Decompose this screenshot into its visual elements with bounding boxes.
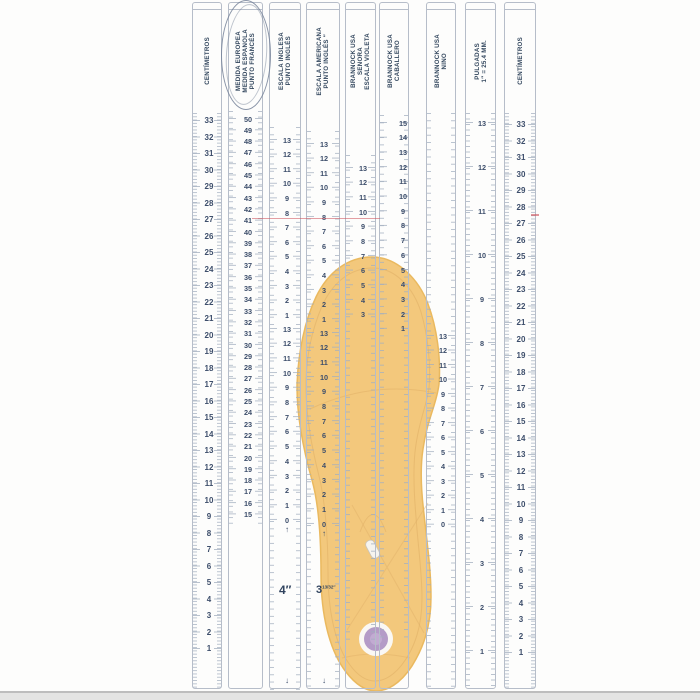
scale-number: 10 [278,369,296,378]
scale-number: 15 [200,413,218,422]
scale-strip-centimetros-right: CENTÍMETROS33323130292827262524232221201… [504,2,536,689]
scale-number: 32 [512,137,530,146]
scale-number: 19 [239,465,257,474]
scale-number: 4 [278,267,296,276]
strip-header-centimetros-left: CENTÍMETROS [193,14,221,108]
scale-number: 2 [278,486,296,495]
scale-number: 23 [512,285,530,294]
strip-top-divider [193,9,221,10]
scale-number: 25 [239,397,257,406]
scale-number: 14 [200,430,218,439]
scale-number: 19 [200,347,218,356]
scale-number: 34 [239,295,257,304]
scale-number: 5 [315,256,333,265]
scale-number: 5 [512,582,530,591]
scale-number: 11 [278,165,296,174]
strip-top-divider [346,9,375,10]
scale-number: 30 [512,170,530,179]
scale-number: 27 [512,219,530,228]
scale-number: 0 [315,520,333,529]
scale-number: 4 [315,271,333,280]
tick-marks [307,143,314,321]
scale-number: 31 [200,149,218,158]
scale-number: 7 [278,223,296,232]
scale-number: 6 [394,251,412,260]
scale-number: 9 [278,383,296,392]
scale-number: 13 [512,450,530,459]
scale-number: 20 [200,331,218,340]
scale-number: 12 [315,343,333,352]
strip-header-brannock-senora: BRANNOCK USASEÑORAESCALA VIOLETA [346,14,375,108]
scale-number: 4 [278,457,296,466]
scale-number: 5 [200,578,218,587]
scale-number: 4 [394,280,412,289]
scale-number: 11 [354,193,372,202]
scale-number: 33 [200,116,218,125]
strip-top-divider [505,9,535,10]
scale-number: 6 [354,266,372,275]
scale-number: 4 [354,296,372,305]
scale-number: 21 [200,314,218,323]
scale-number: 1 [315,505,333,514]
scale-number: 32 [200,133,218,142]
baseline-arrow-icon: ↓ [315,677,333,685]
tick-marks [380,122,387,331]
scale-number: 26 [512,236,530,245]
scale-number: 15 [239,510,257,519]
scale-number: 7 [473,383,491,392]
scale-number: 16 [512,401,530,410]
scale-number: 3 [394,295,412,304]
scale-number: 12 [394,163,412,172]
tick-marks [505,124,512,655]
tick-marks [270,328,277,522]
scale-number: 13 [315,140,333,149]
strip-header-line: SEÑORA [357,47,364,75]
scale-number: 32 [239,318,257,327]
strip-header-brannock-caballero: BRANNOCK USACABALLERO [380,14,408,108]
scale-number: 12 [512,467,530,476]
scale-number: 4 [315,461,333,470]
scale-number: 5 [394,266,412,275]
scale-number: 8 [473,339,491,348]
tick-marks [466,122,473,653]
scale-number: 1 [434,506,452,515]
scale-number: 11 [512,483,530,492]
scale-number: 6 [278,238,296,247]
scale-number: 26 [200,232,218,241]
strip-header-centimetros-right: CENTÍMETROS [505,14,535,108]
scale-number: 8 [354,237,372,246]
scale-number: 13 [354,164,372,173]
strip-header-line: PUNTO INGLÉS [285,36,292,85]
scale-number: 27 [239,374,257,383]
scale-number: 31 [512,153,530,162]
scale-number: 10 [354,208,372,217]
strip-header-line: ESCALA AMERICANA [316,27,323,96]
scale-number: 7 [315,417,333,426]
baseline-arrow-icon: ↓ [278,677,296,685]
scale-number: 6 [200,562,218,571]
scale-number: 8 [315,402,333,411]
scale-number: 1 [512,648,530,657]
scale-number: 18 [239,476,257,485]
scale-number: 11 [315,169,333,178]
scale-number: 8 [434,404,452,413]
scale-number: 3 [315,476,333,485]
red-scan-mark [531,214,539,216]
strip-header-line: BRANNOCK USA [387,34,394,88]
scale-number: 2 [278,296,296,305]
scale-number: 5 [434,448,452,457]
scale-number: 29 [512,186,530,195]
scale-number: 21 [239,442,257,451]
scale-number: 8 [394,221,412,230]
tick-marks [332,332,339,526]
scale-number: 6 [315,242,333,251]
zero-pointer-icon: ↑ [278,526,296,534]
scale-number: 11 [434,361,452,370]
scale-number: 9 [394,207,412,216]
scale-number: 12 [278,150,296,159]
scale-number: 5 [278,252,296,261]
scale-number: 28 [200,199,218,208]
scale-number: 44 [239,182,257,191]
strip-header-line: BRANNOCK USA [434,34,441,88]
scale-number: 47 [239,148,257,157]
scale-number: 9 [512,516,530,525]
scale-strip-pulgadas: PULGADAS1″ = 25.4 MM.13121110987654321 [465,2,496,689]
scale-number: 14 [512,434,530,443]
tick-marks [346,167,353,317]
scale-number: 36 [239,273,257,282]
scale-number: 21 [512,318,530,327]
foot-measuring-chart: CENTÍMETROS33323130292827262524232221201… [0,0,700,700]
scale-number: 3 [354,310,372,319]
scale-number: 25 [512,252,530,261]
scale-number: 22 [200,298,218,307]
scale-number: 1 [394,324,412,333]
scale-number: 3 [315,286,333,295]
scale-number: 10 [200,496,218,505]
scale-number: 11 [315,358,333,367]
tick-marks [229,118,236,517]
scale-number: 26 [239,386,257,395]
scale-number: 22 [239,431,257,440]
scale-number: 12 [434,346,452,355]
scale-number: 10 [278,179,296,188]
scale-number: 12 [315,154,333,163]
scale-number: 8 [315,213,333,222]
strip-header-line: NIÑO [441,53,448,69]
scale-number: 40 [239,228,257,237]
scale-number: 31 [239,329,257,338]
tick-marks [332,143,339,321]
scale-number: 10 [394,192,412,201]
scale-number: 7 [354,252,372,261]
scale-number: 5 [278,442,296,451]
scale-number: 2 [200,628,218,637]
tick-marks [193,120,200,651]
scale-number: 8 [278,398,296,407]
scale-number: 0 [434,520,452,529]
scale-number: 11 [200,479,218,488]
scale-number: 5 [473,471,491,480]
scale-number: 45 [239,171,257,180]
strip-header-line: CENTÍMETROS [517,37,524,85]
scale-number: 4 [434,462,452,471]
scale-number: 10 [512,500,530,509]
scale-number: 11 [278,354,296,363]
scale-number: 28 [512,203,530,212]
strip-header-line: ESCALA INGLESA [278,32,285,90]
scale-number: 24 [200,265,218,274]
scale-number: 6 [278,427,296,436]
scale-number: 2 [512,632,530,641]
frac-part: 13/32″ [322,584,335,589]
scale-number: 10 [315,183,333,192]
scale-number: 7 [315,227,333,236]
scale-number: 13 [394,148,412,157]
scale-number: 17 [200,380,218,389]
scale-number: 13 [315,329,333,338]
tick-marks [307,332,314,526]
zero-pointer-icon: ↑ [315,530,333,538]
scale-number: 29 [239,352,257,361]
scale-number: 24 [512,269,530,278]
strip-header-escala-inglesa: ESCALA INGLESAPUNTO INGLÉS [270,14,300,108]
scale-strip-centimetros-left: CENTÍMETROS33323130292827262524232221201… [192,2,222,689]
scale-number: 39 [239,239,257,248]
scale-number: 16 [239,499,257,508]
scale-number: 11 [394,177,412,186]
scale-number: 27 [200,215,218,224]
scale-number: 4 [512,599,530,608]
scale-number: 15 [512,417,530,426]
scale-number: 1 [278,501,296,510]
strip-top-divider [466,9,495,10]
scale-number: 23 [239,420,257,429]
scale-number: 24 [239,408,257,417]
strip-header-line: PUNTO INGLÉS ″ [323,34,330,88]
scale-number: 13 [473,119,491,128]
scale-number: 6 [473,427,491,436]
scale-number: 9 [354,222,372,231]
strip-top-divider [427,9,455,10]
scale-number: 49 [239,126,257,135]
scale-number: 30 [200,166,218,175]
heel-ball-frac-label: 313/32″ [316,584,336,596]
scale-number: 17 [512,384,530,393]
scale-number: 19 [512,351,530,360]
scale-number: 8 [278,209,296,218]
scale-number: 3 [278,472,296,481]
page-bottom-edge [0,691,700,700]
scale-number: 10 [473,251,491,260]
scale-number: 9 [315,198,333,207]
strip-header-line: PULGADAS [474,43,481,80]
scale-number: 17 [239,487,257,496]
scale-number: 18 [512,368,530,377]
scale-number: 13 [278,325,296,334]
scale-number: 10 [315,373,333,382]
strip-header-line: 1″ = 25.4 MM. [481,40,488,83]
scale-strip-brannock-nino: BRANNOCK USANIÑO131211109876543210 [426,2,456,689]
scale-number: 3 [200,611,218,620]
scale-number: 38 [239,250,257,259]
scale-number: 9 [473,295,491,304]
scale-number: 4 [473,515,491,524]
scale-number: 7 [200,545,218,554]
scale-number: 2 [434,491,452,500]
scale-number: 9 [200,512,218,521]
scale-number: 22 [512,302,530,311]
red-scan-line [252,218,380,219]
scale-number: 1 [278,311,296,320]
scale-number: 37 [239,261,257,270]
scale-number: 0 [278,516,296,525]
scale-number: 10 [434,375,452,384]
tick-marks [427,335,434,527]
scale-number: 7 [512,549,530,558]
strip-top-divider [307,9,339,10]
scale-strip-brannock-caballero: BRANNOCK USACABALLERO1514131211109876543… [379,2,409,689]
strip-header-line: CABALLERO [394,40,401,81]
scale-number: 16 [200,397,218,406]
scale-number: 14 [394,133,412,142]
scale-number: 3 [278,282,296,291]
scale-number: 8 [512,533,530,542]
scale-number: 2 [315,300,333,309]
strip-header-pulgadas: PULGADAS1″ = 25.4 MM. [466,14,495,108]
scale-number: 20 [239,454,257,463]
scale-number: 6 [315,431,333,440]
scale-number: 5 [354,281,372,290]
scale-number: 7 [278,413,296,422]
strip-header-line: ESCALA VIOLETA [364,33,371,90]
strip-header-brannock-nino: BRANNOCK USANIÑO [427,14,455,108]
scale-number: 9 [315,387,333,396]
scale-number: 2 [315,490,333,499]
scale-number: 11 [473,207,491,216]
scale-number: 43 [239,194,257,203]
scale-number: 2 [473,603,491,612]
scale-number: 7 [394,236,412,245]
scale-number: 12 [200,463,218,472]
scale-number: 15 [394,119,412,128]
scale-number: 1 [315,315,333,324]
scale-number: 3 [473,559,491,568]
scale-number: 28 [239,363,257,372]
strip-header-line: CENTÍMETROS [204,37,211,85]
strip-header-line: BRANNOCK USA [350,34,357,88]
scale-number: 4 [200,595,218,604]
ruler-strips: CENTÍMETROS33323130292827262524232221201… [0,0,700,700]
scale-number: 1 [473,647,491,656]
scale-number: 2 [394,310,412,319]
tick-marks [270,139,277,317]
scale-number: 1 [200,644,218,653]
scale-number: 9 [434,390,452,399]
scale-number: 12 [278,339,296,348]
scale-number: 7 [434,419,452,428]
strip-header-escala-americana: ESCALA AMERICANAPUNTO INGLÉS ″ [307,14,339,108]
strip-top-divider [270,9,300,10]
scale-number: 18 [200,364,218,373]
scale-number: 29 [200,182,218,191]
heel-ball-4in-label: 4″ [279,583,291,597]
scale-number: 35 [239,284,257,293]
scale-number: 46 [239,160,257,169]
scale-number: 12 [473,163,491,172]
scale-number: 50 [239,115,257,124]
scale-number: 3 [434,477,452,486]
scale-number: 13 [200,446,218,455]
strip-top-divider [380,9,408,10]
scale-number: 9 [278,194,296,203]
scale-number: 30 [239,341,257,350]
scale-number: 42 [239,205,257,214]
scale-number: 12 [354,178,372,187]
scale-number: 5 [315,446,333,455]
scale-number: 8 [200,529,218,538]
scale-number: 6 [512,566,530,575]
scale-number: 3 [512,615,530,624]
scale-number: 6 [434,433,452,442]
scale-number: 23 [200,281,218,290]
scale-number: 13 [434,332,452,341]
scale-number: 13 [278,136,296,145]
scale-strip-brannock-senora: BRANNOCK USASEÑORAESCALA VIOLETA13121110… [345,2,376,689]
scale-number: 48 [239,137,257,146]
scale-number: 33 [512,120,530,129]
scale-number: 20 [512,335,530,344]
scale-number: 33 [239,307,257,316]
scale-number: 25 [200,248,218,257]
